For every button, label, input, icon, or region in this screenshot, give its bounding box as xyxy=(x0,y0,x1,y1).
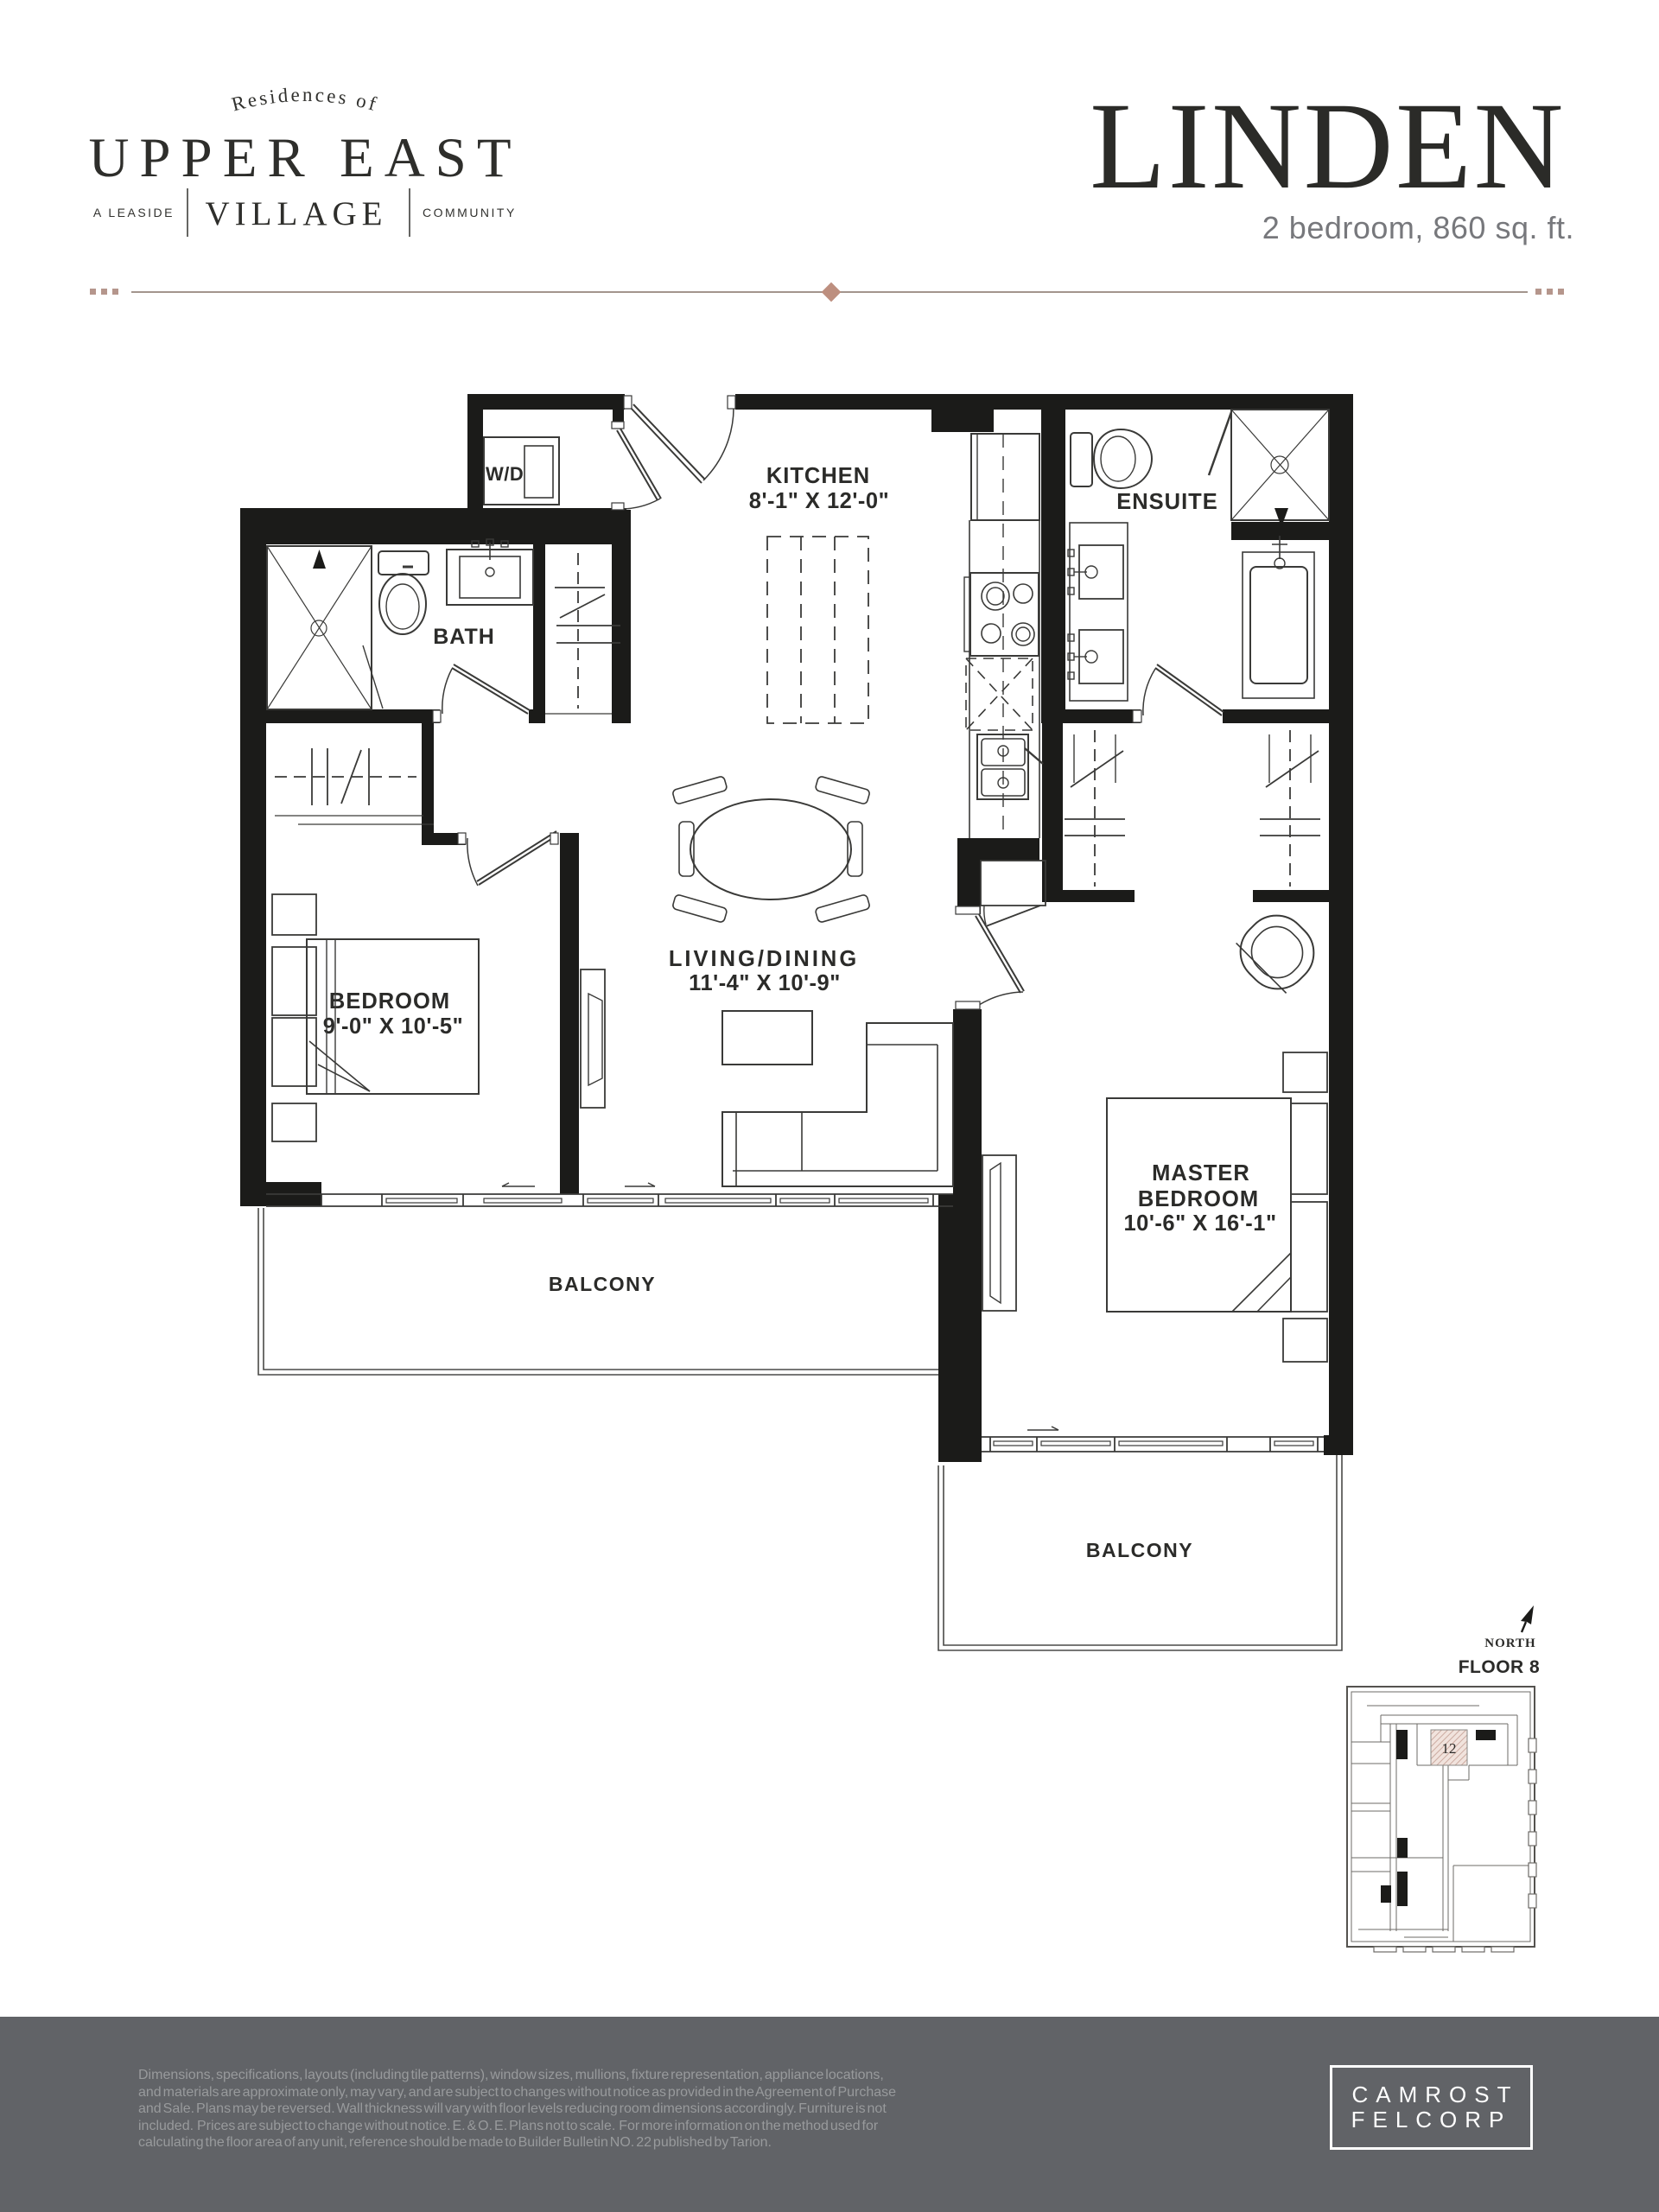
svg-text:NORTH: NORTH xyxy=(1484,1637,1535,1650)
svg-text:MASTER: MASTER xyxy=(1152,1161,1250,1185)
svg-text:11'-4" X 10'-9": 11'-4" X 10'-9" xyxy=(689,971,841,995)
svg-text:FLOOR 8: FLOOR 8 xyxy=(1459,1657,1541,1677)
svg-text:LIVING/DINING: LIVING/DINING xyxy=(669,947,859,971)
svg-text:KITCHEN: KITCHEN xyxy=(766,464,870,488)
svg-text:BATH: BATH xyxy=(433,625,495,649)
svg-text:Residences of: Residences of xyxy=(229,84,380,116)
svg-text:LINDEN: LINDEN xyxy=(1090,78,1566,215)
svg-text:UPPER EAST: UPPER EAST xyxy=(88,127,521,189)
svg-text:ENSUITE: ENSUITE xyxy=(1116,490,1218,514)
svg-text:10'-6" X 16'-1": 10'-6" X 16'-1" xyxy=(1123,1211,1276,1236)
svg-text:9'-0" X 10'-5": 9'-0" X 10'-5" xyxy=(323,1014,463,1039)
svg-text:2 bedroom, 860 sq. ft.: 2 bedroom, 860 sq. ft. xyxy=(1262,210,1574,245)
svg-text:W/D: W/D xyxy=(486,463,524,485)
svg-text:8'-1" X 12'-0": 8'-1" X 12'-0" xyxy=(749,489,889,513)
svg-text:VILLAGE: VILLAGE xyxy=(206,195,388,232)
svg-text:BEDROOM: BEDROOM xyxy=(1138,1187,1259,1211)
svg-text:A LEASIDE: A LEASIDE xyxy=(93,206,175,219)
svg-text:COMMUNITY: COMMUNITY xyxy=(423,206,517,219)
svg-text:12: 12 xyxy=(1442,1740,1457,1757)
svg-text:BEDROOM: BEDROOM xyxy=(329,989,450,1014)
svg-text:BALCONY: BALCONY xyxy=(549,1273,656,1295)
svg-text:BALCONY: BALCONY xyxy=(1086,1539,1193,1561)
